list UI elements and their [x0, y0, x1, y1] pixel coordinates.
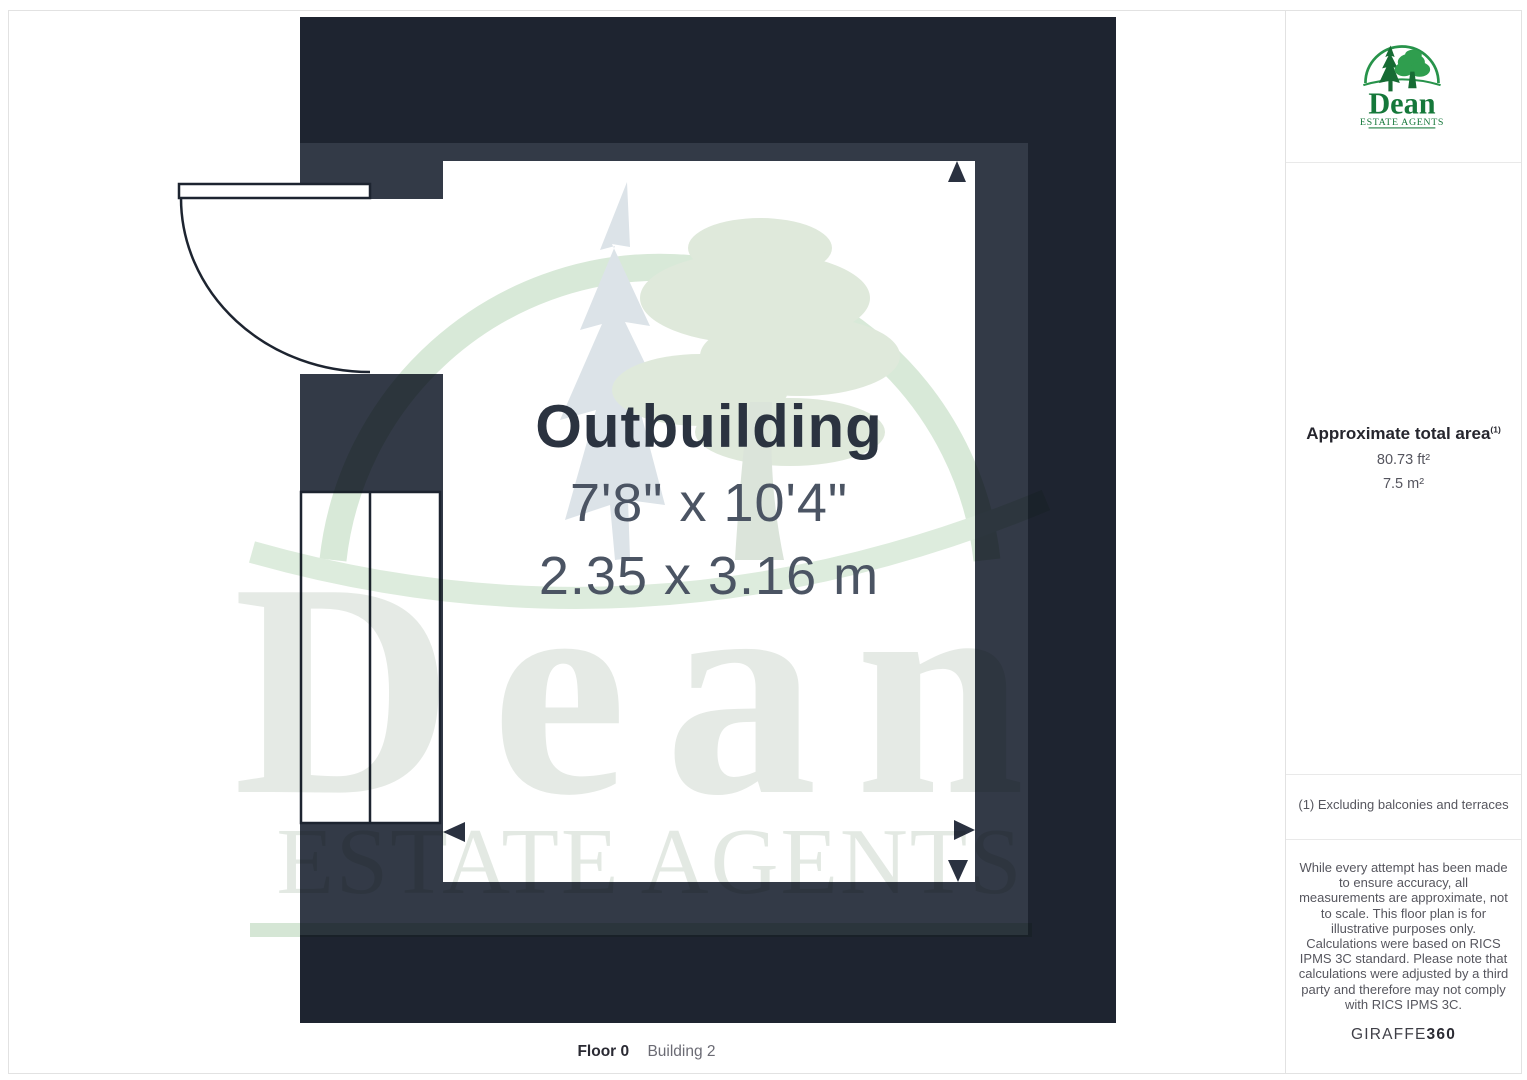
area-title: Approximate total area(1) [1286, 424, 1521, 444]
sidebar-divider [1285, 10, 1286, 1073]
logo-tagline: ESTATE AGENTS [1360, 117, 1444, 128]
brand-name: GIRAFFE [1351, 1026, 1427, 1043]
giraffe360-brand: GIRAFFE360 [1286, 1026, 1521, 1044]
brand-suffix: 360 [1427, 1026, 1456, 1043]
logo-hill [1363, 79, 1440, 85]
logo-name: Dean [1368, 86, 1435, 120]
agency-logo-graphic: Dean ESTATE AGENTS [1356, 34, 1450, 130]
area-footnote-ref: (1) [1490, 424, 1500, 434]
area-title-text: Approximate total area [1306, 424, 1490, 443]
logo-underline [1369, 127, 1436, 128]
disclaimer-calculations: Calculations were based on RICS IPMS 3C … [1296, 936, 1511, 1012]
agency-logo: Dean ESTATE AGENTS [1356, 34, 1450, 130]
sidebar-section-divider [1286, 162, 1521, 163]
page-border [8, 10, 1522, 1074]
area-imperial: 80.73 ft² [1286, 452, 1521, 468]
sidebar-section-divider [1286, 774, 1521, 775]
area-metric: 7.5 m² [1286, 476, 1521, 492]
sidebar-section-divider [1286, 839, 1521, 840]
area-footnote: (1) Excluding balconies and terraces [1294, 797, 1513, 812]
floorplan-page: Dean ESTATE AGENTS Outbuilding 7'8" x 10… [0, 0, 1527, 1080]
disclaimer-accuracy: While every attempt has been made to ens… [1296, 860, 1511, 936]
